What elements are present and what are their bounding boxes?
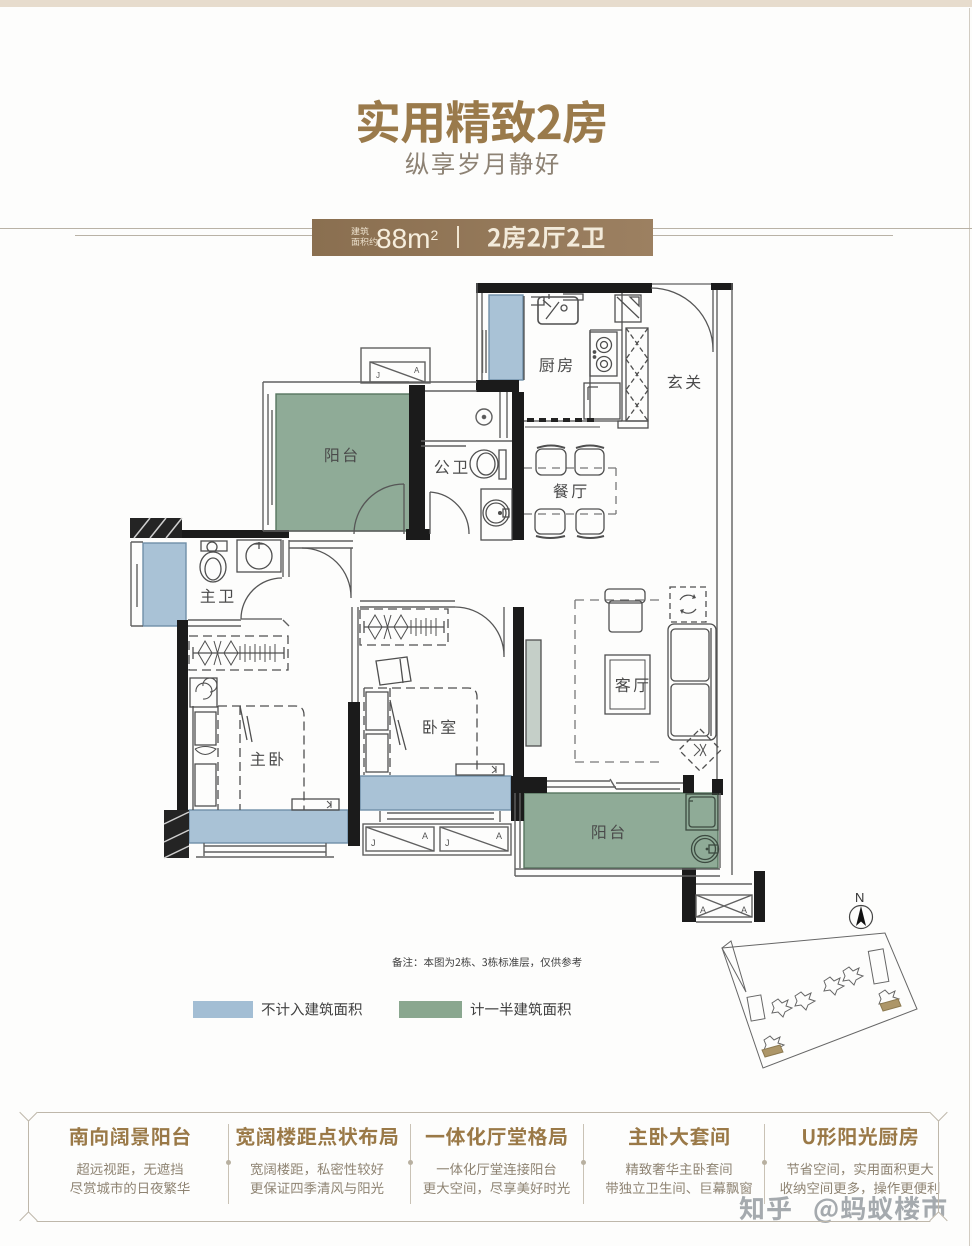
svg-text:A: A	[741, 905, 747, 915]
svg-text:J: J	[371, 838, 376, 848]
svg-text:A: A	[700, 905, 706, 915]
svg-text:J: J	[376, 371, 380, 380]
svg-text:J: J	[445, 838, 450, 848]
svg-text:A: A	[422, 831, 428, 841]
svg-text:A: A	[496, 831, 502, 841]
svg-text:N: N	[855, 890, 864, 905]
svg-text:A: A	[414, 366, 420, 375]
